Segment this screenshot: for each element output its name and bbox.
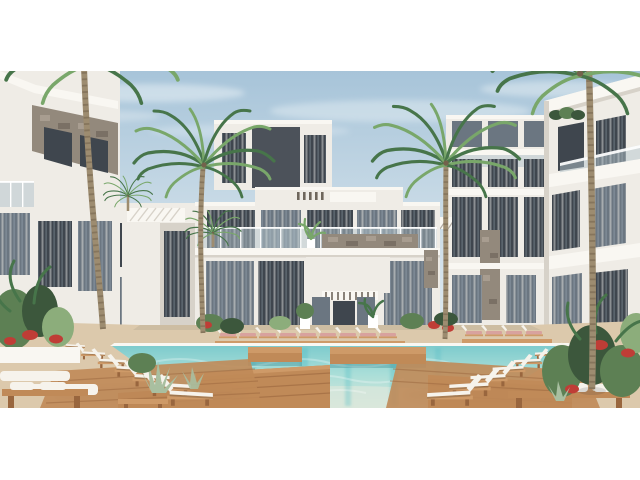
pool-coping	[110, 343, 572, 346]
towel	[40, 382, 66, 390]
planter-wall	[0, 347, 80, 363]
towel	[10, 382, 34, 390]
side-table	[118, 399, 168, 404]
stone-pillar-center	[424, 250, 438, 288]
pergola-roof	[127, 208, 185, 222]
page	[0, 0, 640, 480]
stone-feature-wall	[322, 234, 418, 249]
swim-platform-far-left	[248, 347, 302, 366]
center-building	[195, 187, 440, 332]
dark-accent-panel	[252, 127, 300, 188]
low-lounger-1	[0, 371, 70, 381]
left-balustrade	[0, 181, 34, 207]
architectural-render	[0, 71, 640, 408]
letterbox-bottom	[0, 408, 640, 480]
floor-slab	[195, 248, 440, 255]
entrance-door	[333, 301, 355, 329]
letterbox-top	[0, 0, 640, 71]
